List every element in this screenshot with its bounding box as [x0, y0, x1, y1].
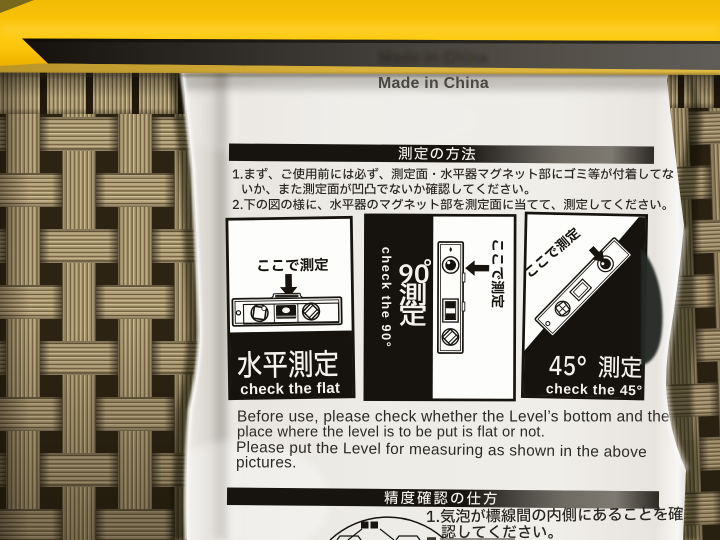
svg-text:check the flat: check the flat	[240, 380, 340, 399]
svg-text:Made in China: Made in China	[378, 75, 489, 92]
svg-text:check the 45°: check the 45°	[546, 380, 643, 398]
svg-text:pictures.: pictures.	[236, 455, 297, 472]
svg-text:Before use, please check wheth: Before use, please check whether the Lev…	[237, 409, 670, 426]
svg-text:Made in China: Made in China	[379, 50, 488, 67]
svg-text:check the 90°: check the 90°	[379, 247, 394, 349]
svg-text:place where the level is to be: place where the level is to be put is fl…	[237, 425, 545, 441]
